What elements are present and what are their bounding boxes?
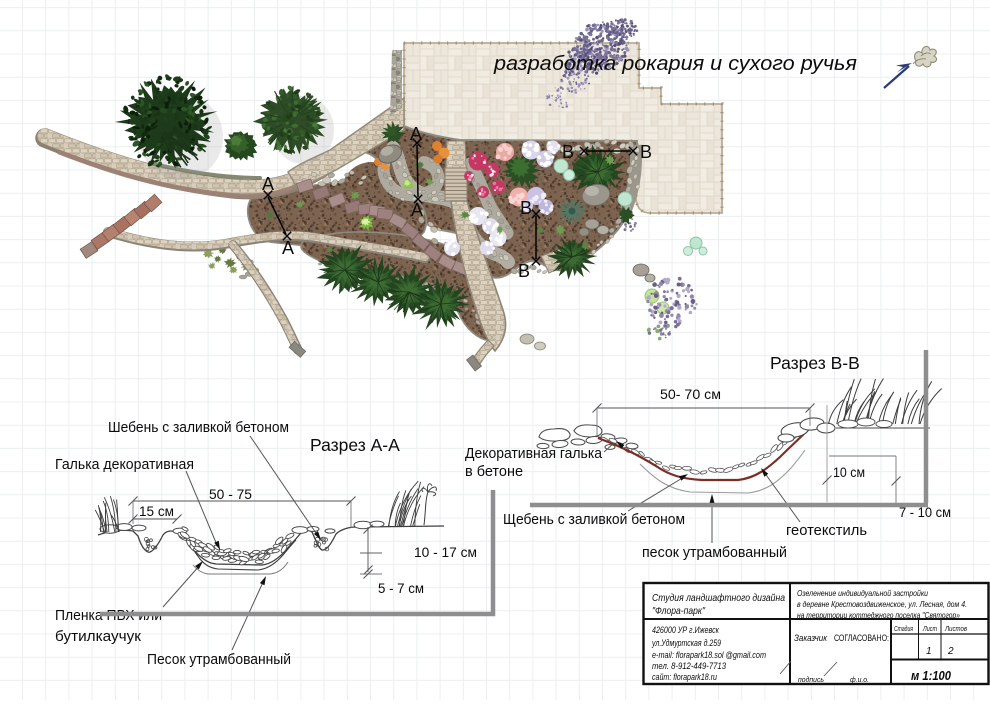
svg-text:2: 2	[947, 646, 954, 657]
svg-text:"Флора-парк": "Флора-парк"	[652, 606, 706, 617]
svg-text:В: В	[518, 261, 530, 281]
svg-text:10 - 17 см: 10 - 17 см	[414, 544, 477, 560]
svg-text:426000 УР г.Ижевск: 426000 УР г.Ижевск	[652, 625, 719, 635]
svg-text:ф.и.о.: ф.и.о.	[850, 675, 869, 684]
svg-text:В: В	[520, 198, 532, 218]
svg-text:Листов: Листов	[944, 624, 967, 633]
svg-text:Галька декоративная: Галька декоративная	[55, 456, 194, 473]
svg-text:ул.Удмуртская д.259: ул.Удмуртская д.259	[651, 638, 721, 648]
svg-text:сайт: florapark18.ru: сайт: florapark18.ru	[652, 672, 717, 682]
svg-text:разработка рокария и сухого ру: разработка рокария и сухого ручья	[493, 52, 857, 75]
svg-text:м 1:100: м 1:100	[911, 669, 951, 683]
svg-text:геотекстиль: геотекстиль	[786, 522, 867, 539]
svg-text:бутилкаучук: бутилкаучук	[55, 628, 141, 645]
svg-text:в бетоне: в бетоне	[465, 463, 523, 480]
svg-text:Стадия: Стадия	[894, 624, 913, 633]
svg-text:1: 1	[926, 646, 932, 657]
svg-text:15 см: 15 см	[139, 503, 174, 519]
svg-text:в деревне Крестовоздвиженское,: в деревне Крестовоздвиженское, ул. Лесна…	[797, 599, 967, 609]
svg-text:подпись: подпись	[798, 675, 824, 684]
svg-text:50 - 75: 50 - 75	[209, 486, 252, 502]
svg-text:В: В	[640, 142, 652, 162]
svg-text:50- 70 см: 50- 70 см	[660, 386, 721, 402]
svg-text:А: А	[411, 200, 423, 220]
svg-text:Щебень с заливкой бетоном: Щебень с заливкой бетоном	[503, 511, 685, 528]
svg-text:Разрез А-А: Разрез А-А	[310, 435, 400, 455]
svg-text:А: А	[282, 238, 294, 258]
svg-text:5 - 7 см: 5 - 7 см	[378, 580, 424, 596]
svg-text:на территории коттеджного посе: на территории коттеджного поселка "Свято…	[797, 610, 960, 620]
svg-text:Заказчик: Заказчик	[794, 633, 828, 643]
svg-text:песок утрамбованный: песок утрамбованный	[642, 544, 787, 561]
svg-text:СОГЛАСОВАНО:: СОГЛАСОВАНО:	[834, 633, 889, 643]
svg-text:Песок утрамбованный: Песок утрамбованный	[147, 651, 291, 668]
svg-text:Шебень с заливкой бетоном: Шебень с заливкой бетоном	[108, 419, 289, 436]
svg-text:Разрез В-В: Разрез В-В	[770, 353, 860, 373]
svg-text:e-mail: florapark18.sol @gmail: e-mail: florapark18.sol @gmail.com	[652, 650, 766, 660]
svg-text:Озеленение индивидуальной заст: Озеленение индивидуальной застройки	[797, 588, 928, 598]
svg-text:Декоративная галька: Декоративная галька	[465, 445, 603, 462]
svg-text:Лист: Лист	[922, 624, 937, 633]
svg-text:10 см: 10 см	[833, 464, 865, 480]
svg-text:В: В	[562, 142, 574, 162]
svg-text:Студия ландшафтного дизайна: Студия ландшафтного дизайна	[652, 592, 785, 604]
svg-text:А: А	[410, 124, 422, 144]
svg-text:тел. 8-912-449-7713: тел. 8-912-449-7713	[652, 661, 727, 671]
